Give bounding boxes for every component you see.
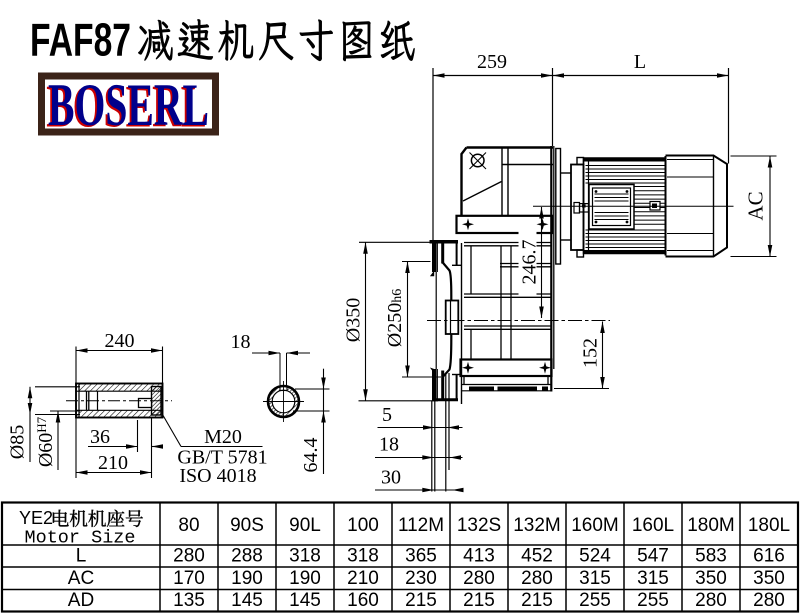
svg-text:L: L [634, 51, 646, 73]
svg-text:AC: AC [68, 568, 94, 589]
svg-text:145: 145 [289, 590, 321, 611]
svg-text:170: 170 [173, 568, 205, 589]
svg-text:210: 210 [347, 568, 379, 589]
svg-text:YE2: YE2 [19, 508, 53, 528]
svg-text:180M: 180M [687, 515, 735, 536]
svg-text:135: 135 [173, 590, 205, 611]
svg-text:190: 190 [289, 568, 321, 589]
svg-text:AC: AC [744, 191, 768, 220]
svg-text:160: 160 [347, 590, 379, 611]
svg-text:413: 413 [463, 546, 495, 567]
svg-text:583: 583 [695, 546, 727, 567]
svg-text:145: 145 [231, 590, 263, 611]
svg-text:ISO 4018: ISO 4018 [179, 465, 256, 487]
svg-text:240: 240 [105, 330, 135, 352]
svg-text:18: 18 [379, 434, 399, 456]
svg-text:190: 190 [231, 568, 263, 589]
svg-text:365: 365 [405, 546, 437, 567]
svg-text:215: 215 [463, 590, 495, 611]
svg-text:Ø85: Ø85 [7, 425, 29, 459]
svg-text:524: 524 [579, 546, 611, 567]
svg-text:280: 280 [521, 568, 553, 589]
svg-text:Ø350: Ø350 [343, 298, 365, 342]
svg-text:80: 80 [178, 515, 199, 536]
svg-text:5: 5 [382, 404, 392, 426]
svg-text:616: 616 [753, 546, 785, 567]
svg-text:255: 255 [637, 590, 669, 611]
svg-text:215: 215 [405, 590, 437, 611]
svg-text:36: 36 [90, 426, 110, 448]
svg-text:255: 255 [579, 590, 611, 611]
svg-text:280: 280 [173, 546, 205, 567]
svg-text:180L: 180L [748, 515, 790, 536]
svg-text:160M: 160M [571, 515, 619, 536]
svg-text:318: 318 [347, 546, 379, 567]
svg-text:M20: M20 [204, 426, 242, 448]
svg-text:90L: 90L [289, 515, 321, 536]
svg-text:288: 288 [231, 546, 263, 567]
svg-text:280: 280 [753, 590, 785, 611]
svg-text:18: 18 [231, 331, 251, 353]
svg-text:259: 259 [477, 51, 507, 73]
svg-text:246.7: 246.7 [519, 240, 541, 285]
svg-text:280: 280 [695, 590, 727, 611]
svg-text:547: 547 [637, 546, 669, 567]
svg-text:210: 210 [98, 452, 128, 474]
svg-text:BOSERL: BOSERL [48, 72, 209, 138]
svg-text:152: 152 [580, 338, 602, 368]
svg-text:64.4: 64.4 [300, 438, 322, 473]
svg-text:160L: 160L [632, 515, 674, 536]
svg-text:280: 280 [463, 568, 495, 589]
svg-text:Ø60H7: Ø60H7 [34, 416, 57, 467]
svg-text:315: 315 [579, 568, 611, 589]
svg-text:318: 318 [289, 546, 321, 567]
svg-text:132S: 132S [457, 515, 501, 536]
svg-text:AD: AD [68, 590, 94, 611]
svg-text:315: 315 [637, 568, 669, 589]
svg-text:350: 350 [695, 568, 727, 589]
svg-text:Ø250h6: Ø250h6 [384, 289, 406, 347]
svg-text:FAF87: FAF87 [30, 14, 131, 66]
svg-text:350: 350 [753, 568, 785, 589]
svg-text:132M: 132M [513, 515, 561, 536]
svg-text:90S: 90S [230, 515, 264, 536]
svg-text:230: 230 [405, 568, 437, 589]
svg-text:100: 100 [347, 515, 379, 536]
svg-text:452: 452 [521, 546, 553, 567]
svg-text:112M: 112M [398, 515, 444, 536]
svg-text:30: 30 [381, 467, 401, 489]
svg-text:L: L [76, 546, 87, 567]
svg-text:215: 215 [521, 590, 553, 611]
